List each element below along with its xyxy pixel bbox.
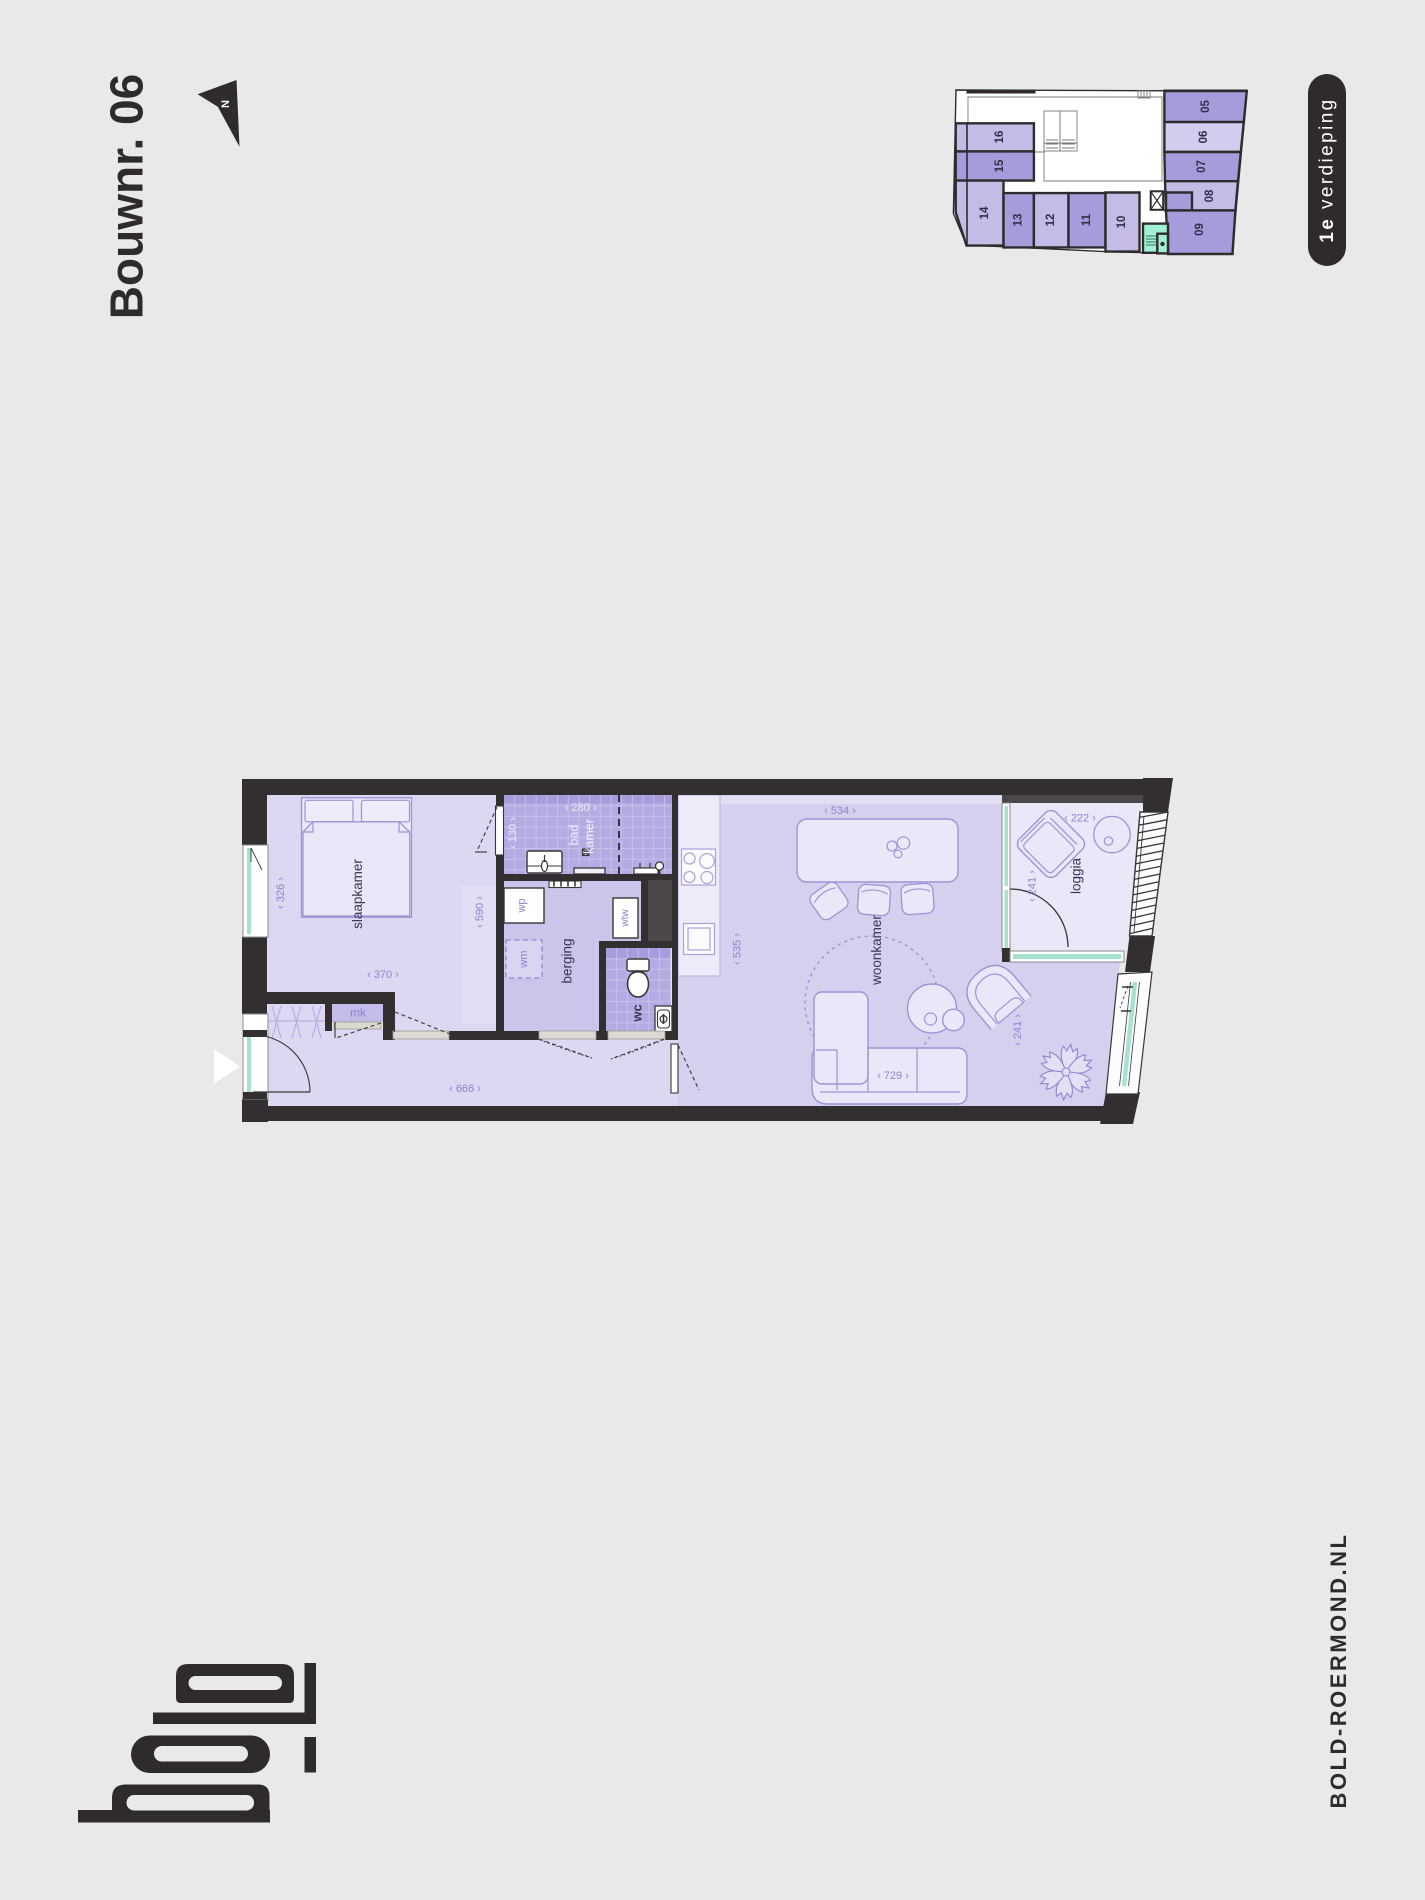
svg-text:10: 10 [1116,216,1128,229]
svg-text:14: 14 [979,206,991,219]
svg-text:woonkamer: woonkamer [869,915,884,986]
svg-text:11: 11 [1081,213,1093,226]
svg-text:06: 06 [1198,131,1210,144]
svg-text:N: N [220,100,232,108]
svg-text:loggia: loggia [1069,857,1084,894]
svg-text:kamer: kamer [583,819,597,854]
svg-text:‹ 222 ›: ‹ 222 › [1064,813,1096,825]
svg-text:‹ 590 ›: ‹ 590 › [474,896,486,928]
svg-text:wp: wp [516,898,528,913]
svg-text:09: 09 [1194,223,1206,236]
svg-text:12: 12 [1045,214,1057,227]
svg-text:‹ 534 ›: ‹ 534 › [824,805,856,817]
svg-text:mk: mk [350,1006,367,1020]
svg-text:15: 15 [994,159,1006,172]
svg-text:‹ 729 ›: ‹ 729 › [877,1070,909,1082]
svg-text:05: 05 [1200,100,1212,113]
svg-text:16: 16 [994,131,1006,144]
svg-text:‹ 280 ›: ‹ 280 › [565,802,597,814]
svg-text:‹ 535 ›: ‹ 535 › [732,933,744,965]
svg-text:berging: berging [560,938,575,983]
svg-text:07: 07 [1196,160,1208,173]
svg-text:13: 13 [1013,214,1025,227]
svg-text:wtw: wtw [620,909,631,928]
svg-text:bad: bad [567,825,581,846]
svg-text:1e verdieping: 1e verdieping [1317,97,1338,242]
svg-text:‹ 241 ›: ‹ 241 › [1012,1014,1024,1046]
svg-text:BOLD-ROERMOND.NL: BOLD-ROERMOND.NL [1326,1533,1351,1809]
svg-text:slaapkamer: slaapkamer [350,859,365,929]
svg-text:‹ 241 ›: ‹ 241 › [1027,870,1039,902]
svg-text:‹ 370 ›: ‹ 370 › [367,969,399,981]
svg-text:‹ 130 ›: ‹ 130 › [507,817,519,849]
svg-text:‹ 326 ›: ‹ 326 › [275,877,287,909]
svg-text:wc: wc [630,1004,645,1022]
svg-text:wm: wm [518,950,530,968]
svg-text:08: 08 [1204,189,1216,202]
svg-text:‹ 666 ›: ‹ 666 › [449,1083,481,1095]
svg-text:Bouwnr. 06: Bouwnr. 06 [101,74,153,319]
